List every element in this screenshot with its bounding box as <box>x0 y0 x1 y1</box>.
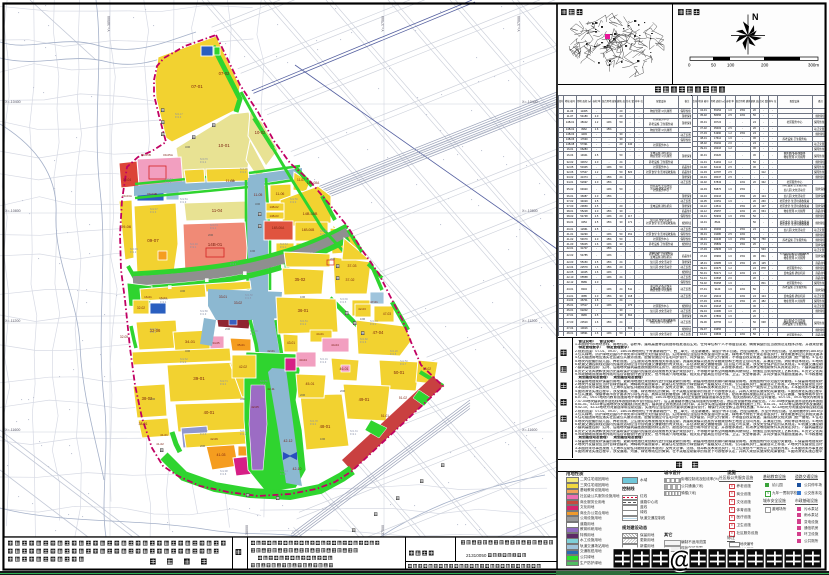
svg-text:16M: 16M <box>360 317 365 321</box>
svg-text:35-01: 35-01 <box>237 343 245 347</box>
svg-text:F=2.4: F=2.4 <box>160 301 167 304</box>
svg-text:39-01: 39-01 <box>193 376 205 381</box>
svg-text:51-01: 51-01 <box>381 414 389 418</box>
svg-text:37-03: 37-03 <box>348 264 357 268</box>
svg-text:07-01: 07-01 <box>191 84 203 89</box>
svg-text:F=2.1: F=2.1 <box>370 323 377 326</box>
svg-text:09-04: 09-04 <box>123 178 131 182</box>
svg-text:20M: 20M <box>200 444 205 448</box>
svg-text:41-01: 41-01 <box>160 433 168 437</box>
svg-text:32M: 32M <box>185 349 190 353</box>
svg-text:X=-11200: X=-11200 <box>522 319 537 323</box>
svg-text:09-05A: 09-05A <box>163 153 173 157</box>
svg-text:X=-11600: X=-11600 <box>522 428 537 432</box>
svg-text:F=2.4: F=2.4 <box>310 423 317 426</box>
svg-text:33-01: 33-01 <box>219 295 227 299</box>
svg-text:F=1.9: F=1.9 <box>165 181 172 184</box>
svg-text:36-01: 36-01 <box>298 308 309 313</box>
svg-text:47-03: 47-03 <box>383 312 391 316</box>
svg-text:09-03A: 09-03A <box>122 194 132 198</box>
svg-text:42-01: 42-01 <box>267 349 275 353</box>
svg-text:33-02: 33-02 <box>234 301 242 305</box>
svg-text:47-01: 47-01 <box>370 300 378 304</box>
svg-text:50-01: 50-01 <box>394 370 405 375</box>
svg-text:F=1.6: F=1.6 <box>360 341 367 344</box>
svg-text:16M: 16M <box>320 437 325 441</box>
svg-text:41-02: 41-02 <box>156 442 164 446</box>
svg-text:16-01: 16-01 <box>144 295 152 299</box>
svg-text:44-04: 44-04 <box>331 343 339 347</box>
svg-text:F=2.1: F=2.1 <box>350 433 357 436</box>
svg-text:09-07: 09-07 <box>147 238 159 243</box>
svg-text:46-01: 46-01 <box>340 367 349 371</box>
svg-text:11-05: 11-05 <box>254 193 263 197</box>
svg-text:F=1.7: F=1.7 <box>400 363 407 366</box>
svg-text:F=2.4: F=2.4 <box>220 383 227 386</box>
svg-text:20M: 20M <box>340 389 345 393</box>
svg-text:F=1.2: F=1.2 <box>240 433 247 436</box>
svg-text:F=2.3: F=2.3 <box>230 263 237 266</box>
svg-text:42-06: 42-06 <box>210 437 218 441</box>
svg-text:20M: 20M <box>208 233 213 237</box>
svg-text:20M: 20M <box>225 327 230 331</box>
svg-text:42-05: 42-05 <box>251 405 259 409</box>
svg-text:14B-06A: 14B-06A <box>272 226 285 230</box>
svg-text:X=-10800: X=-10800 <box>522 209 538 213</box>
svg-text:09-05B: 09-05B <box>141 153 151 157</box>
svg-text:41-03: 41-03 <box>217 453 226 457</box>
svg-text:49-01: 49-01 <box>359 397 370 402</box>
svg-text:32M: 32M <box>185 145 190 149</box>
svg-text:11-06: 11-06 <box>276 192 285 196</box>
svg-text:37-02: 37-02 <box>346 278 355 282</box>
svg-text:14B-06B: 14B-06B <box>302 228 314 232</box>
svg-text:35-02: 35-02 <box>295 277 306 282</box>
svg-text:F=2.2: F=2.2 <box>320 233 327 236</box>
svg-text:42-12: 42-12 <box>284 439 293 443</box>
svg-text:F=2.1: F=2.1 <box>250 333 257 336</box>
svg-text:07-02: 07-02 <box>219 71 230 76</box>
svg-text:F=1.5: F=1.5 <box>245 297 252 300</box>
svg-text:F=1.1: F=1.1 <box>310 251 317 254</box>
svg-text:09-06: 09-06 <box>121 224 132 229</box>
svg-text:14B-02: 14B-02 <box>269 205 278 209</box>
svg-text:14B-03: 14B-03 <box>269 214 278 218</box>
svg-text:F=1.0: F=1.0 <box>240 171 247 174</box>
svg-text:20M: 20M <box>300 393 305 397</box>
svg-text:42-03: 42-03 <box>358 307 366 311</box>
svg-text:53-02: 53-02 <box>423 367 431 371</box>
svg-text:47-04: 47-04 <box>373 330 384 335</box>
svg-text:F=1.4: F=1.4 <box>200 161 207 164</box>
svg-text:44-01: 44-01 <box>316 332 324 336</box>
svg-text:F=1.1: F=1.1 <box>210 227 217 230</box>
svg-text:20M: 20M <box>230 179 235 183</box>
svg-text:10-02: 10-02 <box>255 130 266 135</box>
svg-text:40-01: 40-01 <box>204 410 215 415</box>
svg-text:20M: 20M <box>330 257 335 261</box>
svg-text:Y=-37000: Y=-37000 <box>517 16 521 32</box>
svg-text:F=2.3: F=2.3 <box>260 383 267 386</box>
svg-text:F=2.1: F=2.1 <box>190 246 197 249</box>
svg-text:16M: 16M <box>300 295 305 299</box>
svg-text:11-04: 11-04 <box>212 208 223 213</box>
svg-text:F=1.8: F=1.8 <box>220 473 227 476</box>
svg-text:42-11: 42-11 <box>267 387 275 391</box>
svg-text:16M: 16M <box>250 249 255 253</box>
svg-text:F=1.5: F=1.5 <box>340 301 347 304</box>
svg-text:F=1.9: F=1.9 <box>200 313 207 316</box>
svg-text:42-02: 42-02 <box>239 365 247 369</box>
svg-text:14B-08B: 14B-08B <box>303 212 318 216</box>
svg-text:32-05: 32-05 <box>120 335 128 339</box>
svg-text:F=1.9: F=1.9 <box>320 361 327 364</box>
svg-text:X=-11200: X=-11200 <box>5 319 20 323</box>
svg-text:34-05: 34-05 <box>212 341 220 345</box>
svg-text:F=1.3: F=1.3 <box>200 433 207 436</box>
svg-text:F=1.9: F=1.9 <box>280 473 287 476</box>
svg-text:34-01: 34-01 <box>185 339 196 344</box>
svg-text:X=-11600: X=-11600 <box>5 428 20 432</box>
svg-text:F=1.2: F=1.2 <box>300 323 307 326</box>
svg-text:F=2.0: F=2.0 <box>290 201 297 204</box>
svg-text:F=1.3: F=1.3 <box>150 211 157 214</box>
svg-text:F=1.9: F=1.9 <box>180 201 187 204</box>
svg-text:F=1.9: F=1.9 <box>180 361 187 364</box>
svg-text:14B-08A: 14B-08A <box>307 181 320 185</box>
svg-text:32-02: 32-02 <box>137 306 145 310</box>
svg-text:43-01: 43-01 <box>287 341 295 345</box>
svg-text:F=1.3: F=1.3 <box>175 116 182 119</box>
svg-text:16M: 16M <box>150 397 155 401</box>
svg-text:09-03B: 09-03B <box>147 192 157 196</box>
svg-text:X=-10400: X=-10400 <box>5 100 21 104</box>
svg-text:X=-10400: X=-10400 <box>522 100 538 104</box>
svg-text:48-01: 48-01 <box>320 424 331 429</box>
svg-text:10-01: 10-01 <box>218 143 230 148</box>
svg-text:43-04: 43-04 <box>299 358 307 362</box>
svg-text:F=1.2: F=1.2 <box>130 251 137 254</box>
svg-text:42-10: 42-10 <box>293 467 302 471</box>
svg-text:51-02: 51-02 <box>399 396 407 400</box>
svg-text:32M: 32M <box>180 289 185 293</box>
svg-text:Y=-38500: Y=-38500 <box>107 16 111 32</box>
svg-text:X=-10800: X=-10800 <box>5 209 21 213</box>
svg-text:F=1.5: F=1.5 <box>390 353 397 356</box>
svg-text:45-01: 45-01 <box>306 382 315 386</box>
svg-text:F=1.1: F=1.1 <box>280 246 287 249</box>
svg-text:11-07: 11-07 <box>297 178 305 182</box>
svg-text:F=2.2: F=2.2 <box>150 331 157 334</box>
svg-text:14B-01: 14B-01 <box>208 242 223 247</box>
svg-text:32M: 32M <box>255 202 260 206</box>
svg-text:Y=-37500: Y=-37500 <box>381 16 385 32</box>
svg-text:38-01: 38-01 <box>139 422 148 426</box>
svg-text:32M: 32M <box>240 397 245 401</box>
